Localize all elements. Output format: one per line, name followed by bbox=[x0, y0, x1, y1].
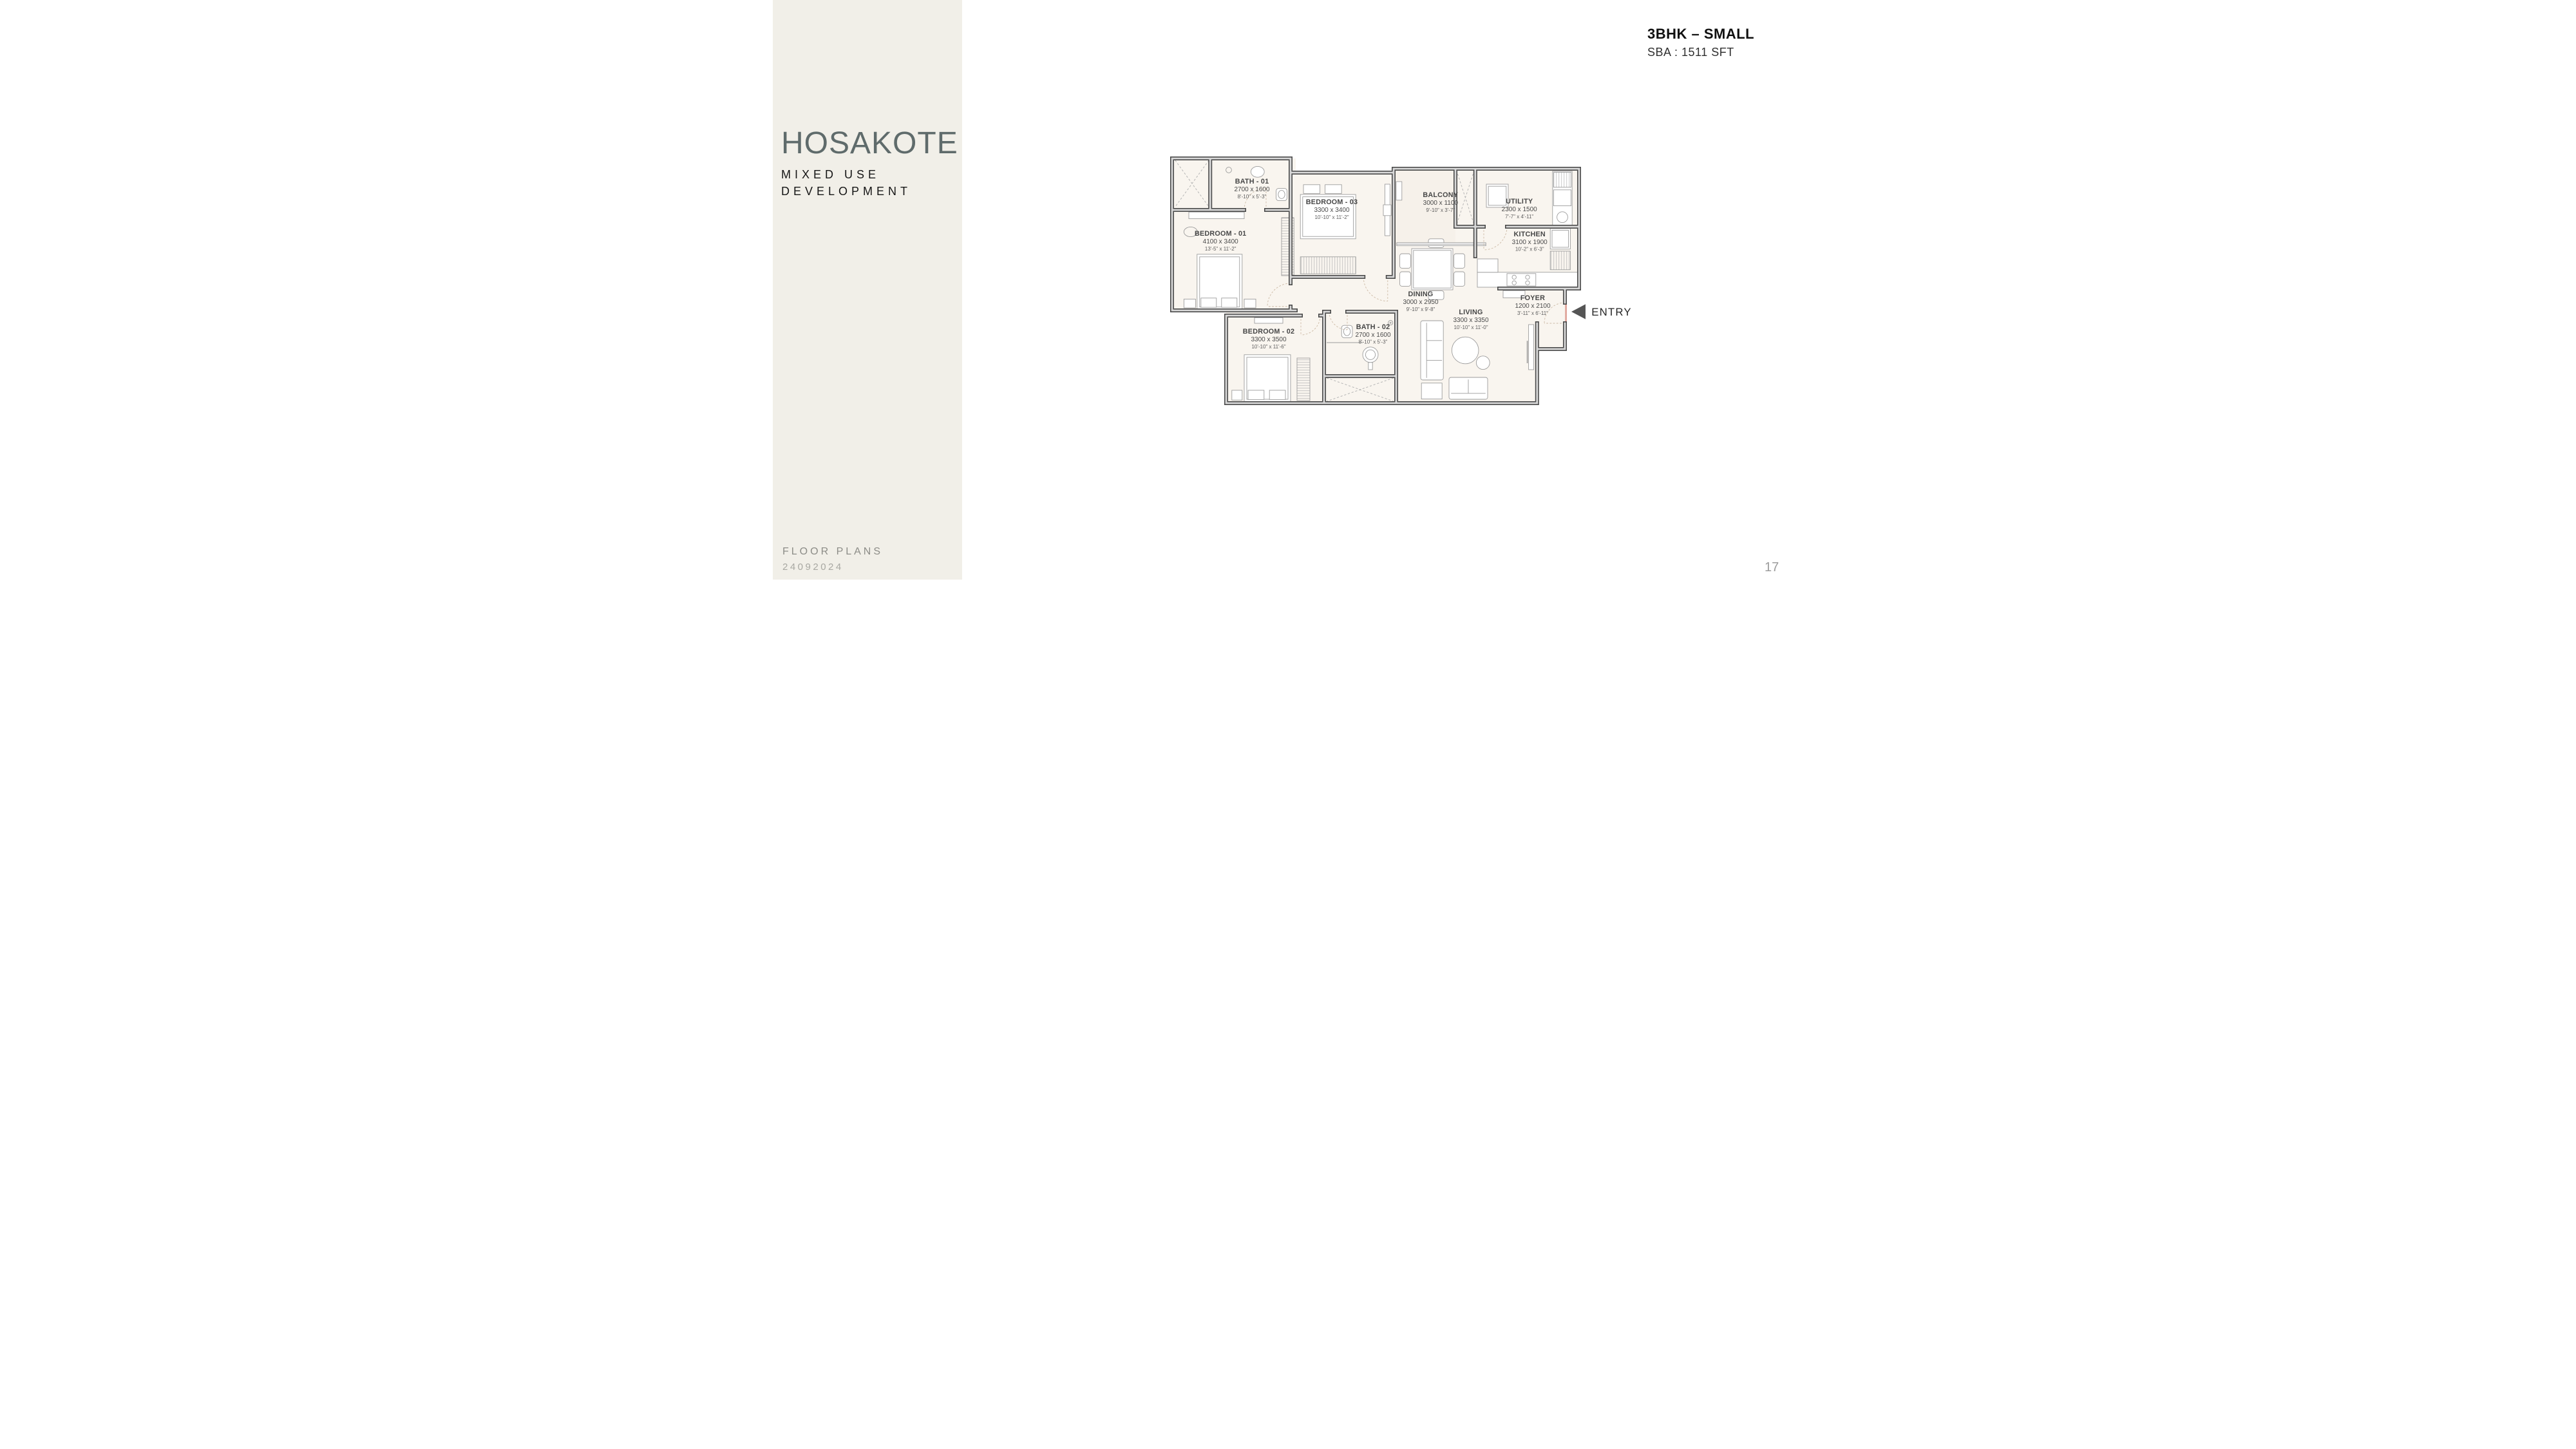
room-label-text: 2700 x 1600 bbox=[1234, 186, 1269, 193]
room-label-text: FOYER bbox=[1520, 294, 1545, 302]
room-label-balcony: BALCONY3000 x 11009'-10" x 3'-7" bbox=[1423, 191, 1458, 213]
room-label-text: KITCHEN bbox=[1514, 231, 1546, 238]
living-coffee-table bbox=[1452, 337, 1479, 364]
project-subtitle-line1: MIXED USE bbox=[781, 166, 958, 183]
room-label-text: BATH - 02 bbox=[1356, 323, 1390, 331]
room-label-bath-01: BATH - 012700 x 16008'-10" x 5'-3" bbox=[1234, 178, 1269, 200]
sidebar-footer: FLOOR PLANS 24092024 bbox=[782, 546, 883, 573]
room-label-text: LIVING bbox=[1459, 308, 1482, 316]
br1-dresser bbox=[1189, 212, 1244, 218]
dining-chair bbox=[1400, 272, 1411, 286]
room-label-text: UTILITY bbox=[1506, 198, 1533, 205]
room-label-text: 3300 x 3350 bbox=[1453, 317, 1488, 324]
br3-pillow bbox=[1303, 185, 1320, 194]
room-label-text: 3100 x 1900 bbox=[1512, 239, 1548, 246]
sidebar: HOSAKOTE MIXED USE DEVELOPMENT FLOOR PLA… bbox=[773, 0, 962, 580]
room-label-text: 8'-10" x 5'-3" bbox=[1359, 339, 1388, 345]
project-subtitle-line2: DEVELOPMENT bbox=[781, 183, 958, 200]
room-label-text: 7'-7" x 4'-11" bbox=[1505, 214, 1533, 220]
br2-pillow bbox=[1248, 390, 1264, 399]
floor-plan: BATH - 012700 x 16008'-10" x 5'-3"BEDROO… bbox=[1167, 146, 1631, 434]
room-label-text: BALCONY bbox=[1423, 191, 1458, 199]
kitchen-shelf bbox=[1550, 251, 1570, 270]
dining-chair bbox=[1454, 272, 1465, 286]
room-label-text: BEDROOM - 03 bbox=[1306, 198, 1358, 206]
bath2-basin bbox=[1363, 347, 1378, 363]
footer-title: FLOOR PLANS bbox=[782, 546, 883, 558]
room-label-text: 3000 x 1100 bbox=[1423, 200, 1459, 207]
room-label-text: 9'-10" x 3'-7" bbox=[1426, 207, 1455, 213]
project-subtitle: MIXED USE DEVELOPMENT bbox=[781, 166, 958, 200]
room-label-text: 3300 x 3500 bbox=[1251, 336, 1286, 343]
room-label-text: DINING bbox=[1408, 290, 1434, 298]
br1-pillow bbox=[1222, 298, 1237, 307]
dining-table bbox=[1412, 249, 1453, 290]
living-sofa-3seat bbox=[1421, 321, 1443, 380]
room-label-text: 9'-10" x 9'-8" bbox=[1406, 307, 1435, 312]
dining-chair bbox=[1454, 254, 1465, 268]
kitchen-counter-return bbox=[1477, 259, 1498, 272]
slide: HOSAKOTE MIXED USE DEVELOPMENT FLOOR PLA… bbox=[773, 0, 1803, 580]
room-label-text: 3000 x 2950 bbox=[1403, 299, 1438, 306]
fridge bbox=[1550, 229, 1570, 249]
unit-type: 3BHK – SMALL bbox=[1647, 26, 1754, 43]
room-label-text: BATH - 01 bbox=[1235, 178, 1269, 185]
room-label-text: 10'-10" x 11'-0" bbox=[1454, 325, 1488, 330]
entry-label: ENTRY bbox=[1591, 306, 1631, 318]
room-label-bath-02: BATH - 022700 x 16008'-10" x 5'-3" bbox=[1355, 323, 1390, 345]
room-label-text: BEDROOM - 01 bbox=[1195, 230, 1246, 238]
living-ottoman bbox=[1421, 383, 1442, 399]
br2-side-table bbox=[1232, 390, 1242, 400]
floor-plan-svg: BATH - 012700 x 16008'-10" x 5'-3"BEDROO… bbox=[1167, 146, 1631, 434]
room-label-kitchen: KITCHEN3100 x 190010'-2" x 6'-3" bbox=[1512, 231, 1548, 252]
room-label-text: 2300 x 1500 bbox=[1502, 206, 1537, 213]
room-label-text: 10'-10" x 11'-6" bbox=[1251, 344, 1285, 350]
room-label-text: BEDROOM - 02 bbox=[1243, 328, 1294, 336]
kitchen-hob bbox=[1507, 274, 1536, 286]
room-label-text: 3300 x 3400 bbox=[1314, 207, 1349, 214]
unit-info: 3BHK – SMALL SBA : 1511 SFT bbox=[1647, 26, 1754, 59]
br2-dresser bbox=[1255, 317, 1283, 323]
dining-chair bbox=[1400, 254, 1411, 268]
br3-wardrobe bbox=[1300, 257, 1356, 274]
tv-unit bbox=[1529, 325, 1534, 370]
unit-area: SBA : 1511 SFT bbox=[1647, 46, 1754, 59]
living-side-table bbox=[1476, 356, 1490, 370]
room-label-text: 10'-2" x 6'-3" bbox=[1515, 247, 1544, 252]
br1-side-table bbox=[1244, 299, 1256, 308]
br1-side-table bbox=[1184, 299, 1195, 308]
washing-machine bbox=[1486, 184, 1508, 207]
br3-pillow bbox=[1325, 185, 1342, 194]
room-label-text: 1200 x 2100 bbox=[1515, 303, 1550, 310]
page-number: 17 bbox=[1765, 560, 1779, 575]
room-label-text: 8'-10" x 5'-3" bbox=[1238, 194, 1267, 200]
room-label-text: 10'-10" x 11'-2" bbox=[1314, 214, 1349, 220]
project-name: HOSAKOTE bbox=[781, 128, 958, 160]
balcony-bench bbox=[1396, 182, 1402, 200]
br2-pillow bbox=[1269, 390, 1285, 399]
entry-arrow-icon bbox=[1571, 304, 1586, 319]
entry-marker: ENTRY bbox=[1571, 304, 1631, 319]
room-label-utility: UTILITY2300 x 15007'-7" x 4'-11" bbox=[1502, 198, 1537, 220]
footer-date: 24092024 bbox=[782, 562, 883, 573]
room-label-text: 2700 x 1600 bbox=[1355, 332, 1390, 339]
br2-wardrobe bbox=[1297, 358, 1310, 401]
bath1-basin bbox=[1251, 166, 1264, 177]
br1-pillow bbox=[1201, 298, 1217, 307]
brand-block: HOSAKOTE MIXED USE DEVELOPMENT bbox=[781, 128, 958, 200]
room-label-text: 4100 x 3400 bbox=[1203, 238, 1238, 245]
utility-vent bbox=[1553, 173, 1571, 187]
room-label-text: 3'-11" x 6'-11" bbox=[1517, 310, 1548, 316]
room-label-text: 13'-5" x 11'-2" bbox=[1205, 246, 1236, 252]
